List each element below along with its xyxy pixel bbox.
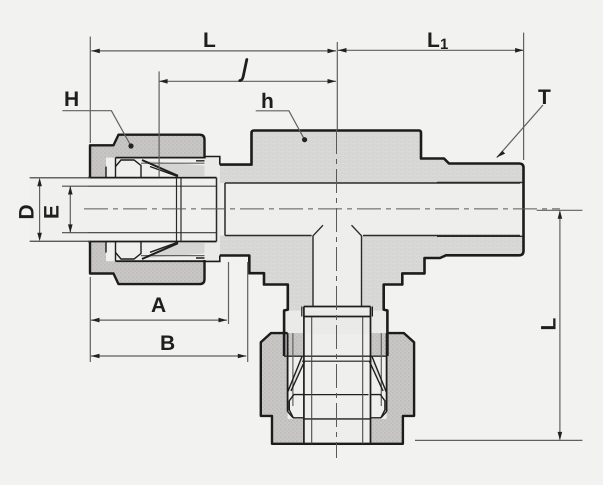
svg-text:L: L	[427, 29, 440, 52]
svg-text:D: D	[16, 204, 39, 219]
svg-text:h: h	[261, 90, 274, 113]
svg-text:B: B	[160, 332, 175, 355]
svg-text:L: L	[203, 29, 216, 52]
svg-text:H: H	[64, 88, 79, 111]
svg-text:A: A	[151, 294, 166, 317]
svg-text:E: E	[41, 205, 64, 219]
svg-text:T: T	[538, 86, 551, 109]
svg-text:L: L	[538, 318, 561, 331]
svg-text:1: 1	[440, 36, 448, 53]
